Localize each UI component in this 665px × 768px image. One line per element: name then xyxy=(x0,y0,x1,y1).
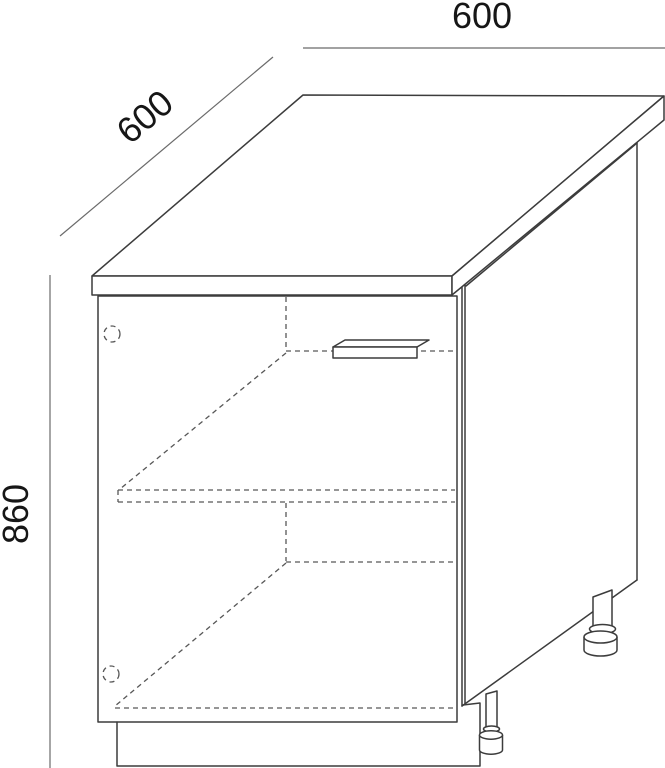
door-handle-top-face xyxy=(333,340,429,347)
cabinet-technical-drawing: 600 600 860 xyxy=(0,0,665,768)
dimension-label-width: 600 xyxy=(452,0,512,36)
plinth xyxy=(117,703,480,766)
foot-front-stem xyxy=(486,691,497,729)
dimension-label-depth: 600 xyxy=(108,82,180,152)
countertop xyxy=(92,95,664,295)
dimension-label-height: 860 xyxy=(0,484,36,544)
door-handle xyxy=(333,340,429,358)
plinth-outline xyxy=(117,703,480,766)
foot-front xyxy=(480,691,503,754)
foot-back-base-top xyxy=(584,631,617,643)
foot-back xyxy=(584,590,617,656)
hinge-bottom-icon xyxy=(103,666,119,682)
interior-top-left-edge xyxy=(120,353,286,489)
interior-bottom-left-edge xyxy=(115,563,286,706)
door-handle-front-face xyxy=(333,347,417,358)
foot-back-stem xyxy=(593,590,612,629)
countertop-front-face xyxy=(92,276,452,295)
shelf-hidden-lines xyxy=(118,490,455,502)
foot-front-base-top xyxy=(480,731,503,739)
drawing-canvas: 600 600 860 xyxy=(0,0,665,768)
hinge-top-icon xyxy=(104,326,120,342)
